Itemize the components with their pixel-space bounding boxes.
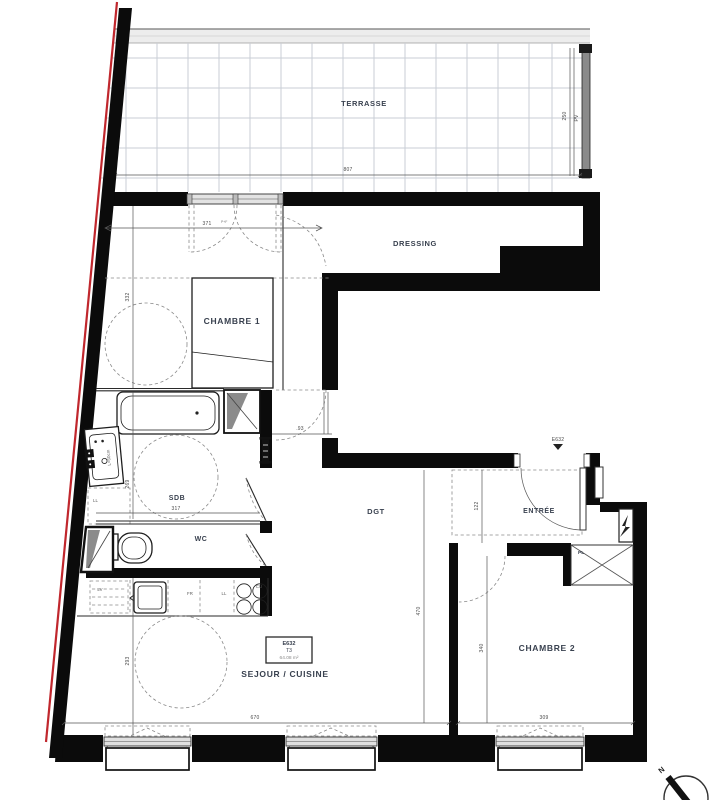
floor-plan-page: 807 250 PV TERRASSE bbox=[0, 0, 725, 800]
label-pv: PV bbox=[574, 114, 580, 122]
towel-radiator-cap-bottom bbox=[260, 461, 272, 464]
terrasse-tile-grid bbox=[100, 43, 582, 192]
sdb-area: L=60cm LL SDB 317 269 bbox=[82, 389, 271, 525]
dim-terrasse-width: 807 bbox=[344, 167, 353, 173]
bay-window-arc-left bbox=[190, 205, 237, 252]
floor-plan-drawing: 807 250 PV TERRASSE bbox=[0, 0, 725, 800]
label-washer: LL bbox=[221, 591, 227, 596]
wall-corridor-stub bbox=[322, 438, 338, 453]
kitchen-counter: LV FR LL CU bbox=[77, 578, 268, 616]
laundry-label: LL bbox=[93, 498, 99, 503]
window-sejour-right bbox=[286, 726, 377, 770]
window2-dashed-frame bbox=[287, 726, 376, 736]
room-label-wc: WC bbox=[195, 536, 208, 543]
partition-sdb-wc bbox=[96, 521, 260, 524]
entree-area: E632 ENTRÉE 122 bbox=[452, 437, 633, 543]
dressing-area: DRESSING bbox=[276, 215, 437, 266]
cooktop-burner-3 bbox=[237, 600, 251, 614]
room-label-sdb: SDB bbox=[169, 495, 185, 502]
toilet-bowl bbox=[118, 533, 152, 563]
dim-chambre2-depth: 340 bbox=[479, 644, 485, 653]
room-label-dgt: DGT bbox=[367, 507, 385, 516]
label-dishwasher: LV bbox=[97, 587, 102, 592]
wall-bottom-2 bbox=[192, 735, 285, 762]
dim-chambre1-width-suffix: P+F bbox=[221, 220, 227, 224]
lot-type: T3 bbox=[286, 648, 292, 654]
label-fridge: FR bbox=[187, 591, 193, 596]
entry-jamb-left bbox=[514, 454, 520, 467]
window1-dashed-frame bbox=[105, 726, 190, 736]
clearance-circle-chambre1 bbox=[105, 303, 187, 385]
towel-radiator-cap-top bbox=[260, 437, 272, 440]
electrical-panel bbox=[619, 509, 633, 542]
room-label-sejour: SEJOUR / CUISINE bbox=[241, 669, 328, 679]
bathtub bbox=[117, 392, 219, 434]
room-label-terrasse: TERRASSE bbox=[341, 99, 387, 108]
wc-door-leaf bbox=[246, 534, 266, 566]
wall-corridor-right bbox=[322, 291, 338, 390]
bay-window-arc-right bbox=[234, 205, 281, 252]
label-cooktop: CU bbox=[256, 584, 262, 589]
placard-label: PL bbox=[578, 550, 584, 556]
dim-dgt-depth: 470 bbox=[416, 607, 422, 616]
room-label-dressing: DRESSING bbox=[393, 239, 437, 248]
bottom-windows bbox=[104, 726, 584, 770]
entry-jamb-right bbox=[584, 454, 590, 467]
cooktop-burner-1 bbox=[237, 584, 251, 598]
window-sejour-left bbox=[104, 726, 191, 770]
bay-window-mullion bbox=[233, 194, 238, 204]
north-arrow: N bbox=[657, 765, 708, 800]
wc-area: WC bbox=[81, 521, 266, 572]
partition-chambre1-sdb bbox=[96, 389, 224, 391]
north-needle bbox=[668, 777, 694, 800]
wall-bottom-3 bbox=[378, 735, 495, 762]
dim-sejour-depth: 293 bbox=[125, 657, 131, 666]
dim-hall-door: .93 bbox=[296, 426, 304, 432]
chambre2-area: PL CHAMBRE 2 340 309 bbox=[456, 545, 635, 725]
hall-door-93: .93 bbox=[272, 390, 332, 440]
entry-door-code: E632 bbox=[552, 437, 564, 443]
dishwasher-hatch bbox=[90, 581, 128, 613]
sdb-door-leaf bbox=[246, 478, 266, 521]
room-label-chambre1: CHAMBRE 1 bbox=[204, 316, 261, 326]
lot-area: 64.08 m² bbox=[280, 655, 299, 661]
window3-sill bbox=[498, 748, 582, 770]
entry-door-leaf bbox=[580, 468, 586, 530]
wall-bottom-4 bbox=[585, 735, 647, 762]
dim-line-250 bbox=[570, 48, 574, 176]
room-label-entree: ENTRÉE bbox=[523, 506, 555, 515]
hall-door-arc bbox=[276, 390, 326, 440]
wall-top-right bbox=[283, 192, 600, 206]
dim-line-371 bbox=[105, 225, 322, 231]
entry-arrow-icon bbox=[553, 444, 563, 450]
entree-zone-dashed bbox=[452, 470, 582, 535]
dim-terrasse-depth: 250 bbox=[562, 112, 568, 121]
wall-right-lower bbox=[633, 502, 647, 762]
wall-dressing-step bbox=[500, 246, 587, 273]
terrasse-rail-cap-bottom bbox=[579, 169, 592, 178]
dim-sdb-depth: 269 bbox=[125, 480, 131, 489]
wall-entree-top bbox=[322, 453, 518, 468]
dim-chambre2-width: 309 bbox=[540, 715, 549, 721]
terrasse-area: 807 250 PV TERRASSE bbox=[100, 29, 592, 192]
wall-chambre2-top bbox=[507, 543, 565, 556]
window3-dashed-frame bbox=[497, 726, 583, 736]
bay-window-jamb-left bbox=[187, 194, 192, 204]
wall-sejour-chambre2 bbox=[449, 543, 458, 735]
dim-line-309 bbox=[456, 721, 635, 725]
chambre2-door-arc bbox=[459, 556, 505, 602]
dim-sdb-width: 317 bbox=[172, 506, 181, 512]
terrasse-rail bbox=[582, 46, 590, 178]
entry-door-arc bbox=[521, 468, 580, 530]
wall-top-chambre1 bbox=[103, 192, 188, 206]
dim-chambre1-depth: 332 bbox=[125, 293, 131, 302]
dim-line-670 bbox=[62, 721, 451, 725]
north-label: N bbox=[657, 765, 667, 775]
wall-pl-left bbox=[563, 543, 571, 586]
wall-dressing-bottom bbox=[322, 273, 600, 291]
sejour-area: E632 T3 64.08 m² SEJOUR / CUISINE 293 67… bbox=[62, 578, 451, 735]
window1-sill bbox=[106, 748, 189, 770]
clearance-circle-sejour bbox=[135, 616, 227, 708]
dim-sejour-width: 670 bbox=[251, 715, 260, 721]
walls bbox=[55, 192, 647, 762]
wall-sdb-wc bbox=[260, 521, 272, 533]
vanity-sink: L=60cm bbox=[82, 427, 123, 487]
dim-chambre1-width: 371 bbox=[203, 221, 212, 227]
bay-window-jamb-right bbox=[278, 194, 283, 204]
lot-code: E632 bbox=[282, 641, 295, 647]
palier-door-frame bbox=[595, 467, 603, 498]
dgt-area: DGT 470 bbox=[367, 470, 424, 723]
window2-sill bbox=[288, 748, 375, 770]
room-label-chambre2: CHAMBRE 2 bbox=[519, 643, 576, 653]
dim-line-807 bbox=[113, 173, 582, 177]
terrasse-rail-cap-top bbox=[579, 44, 592, 53]
bed-chambre1 bbox=[192, 278, 273, 388]
chambre1-area: 371 P+F 332 CHAMBRE 1 bbox=[105, 194, 330, 390]
bathtub-drain bbox=[195, 411, 198, 414]
window-chambre2 bbox=[496, 726, 584, 770]
dim-entree-depth: 122 bbox=[474, 502, 480, 511]
bay-window-leaves bbox=[189, 205, 281, 252]
laundry-slot bbox=[88, 488, 130, 524]
